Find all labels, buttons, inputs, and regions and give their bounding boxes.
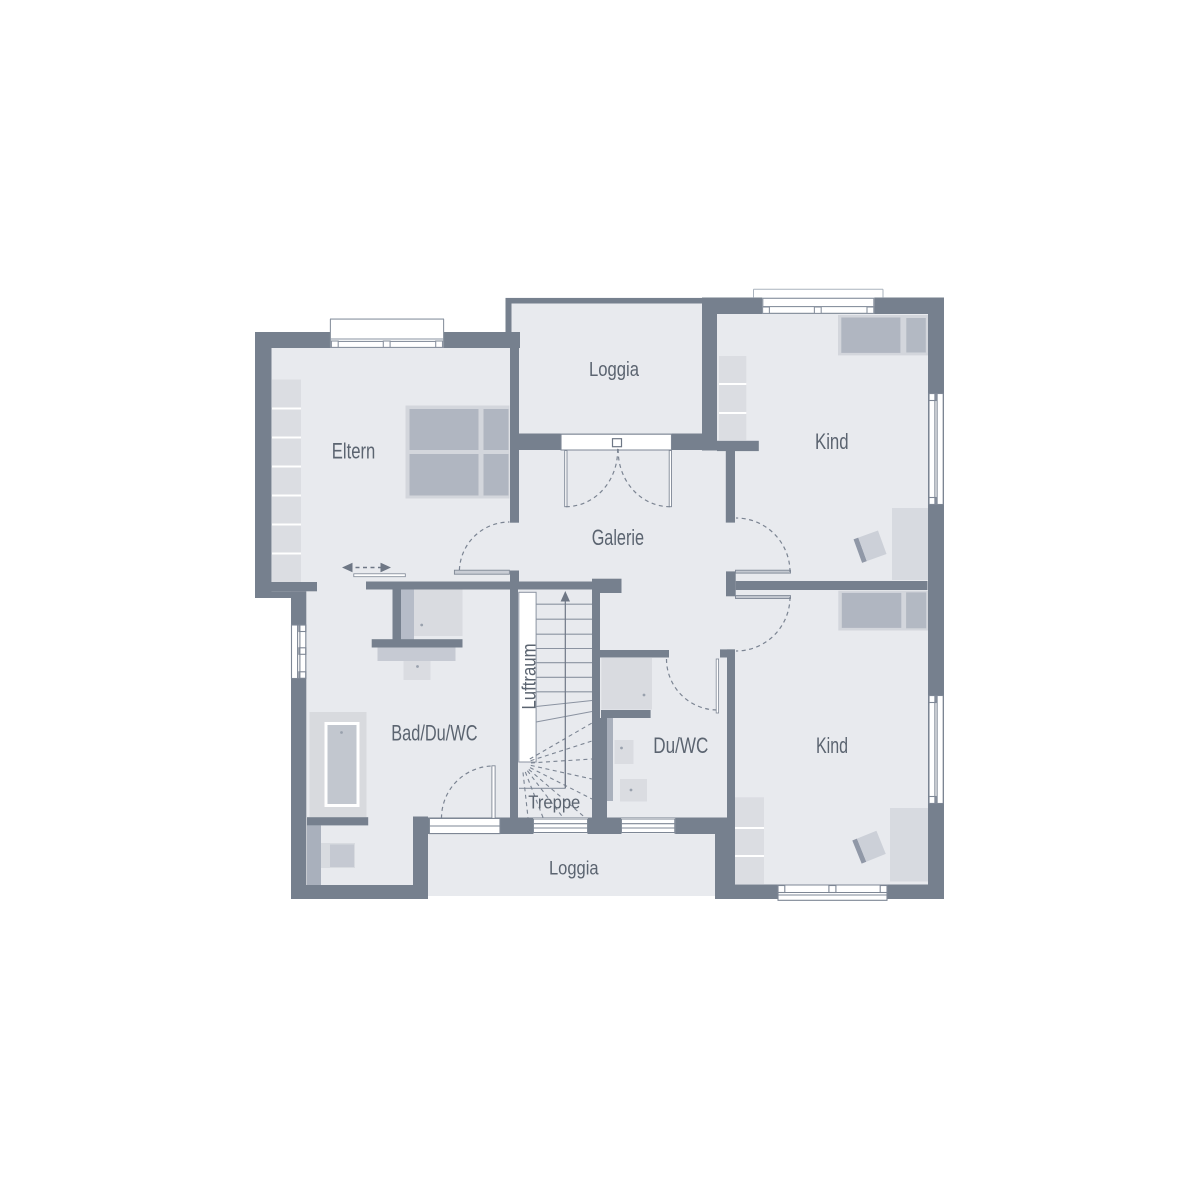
svg-text:Kind: Kind: [815, 429, 849, 454]
svg-text:Galerie: Galerie: [592, 525, 644, 550]
svg-text:Du/WC: Du/WC: [653, 733, 708, 758]
svg-text:Kind: Kind: [816, 733, 848, 758]
svg-text:Luftraum: Luftraum: [520, 644, 541, 710]
svg-text:Bad/Du/WC: Bad/Du/WC: [391, 721, 477, 746]
svg-text:Treppe: Treppe: [528, 791, 580, 812]
svg-text:Loggia: Loggia: [549, 858, 599, 879]
svg-text:Loggia: Loggia: [589, 358, 639, 381]
svg-text:Eltern: Eltern: [332, 439, 376, 464]
